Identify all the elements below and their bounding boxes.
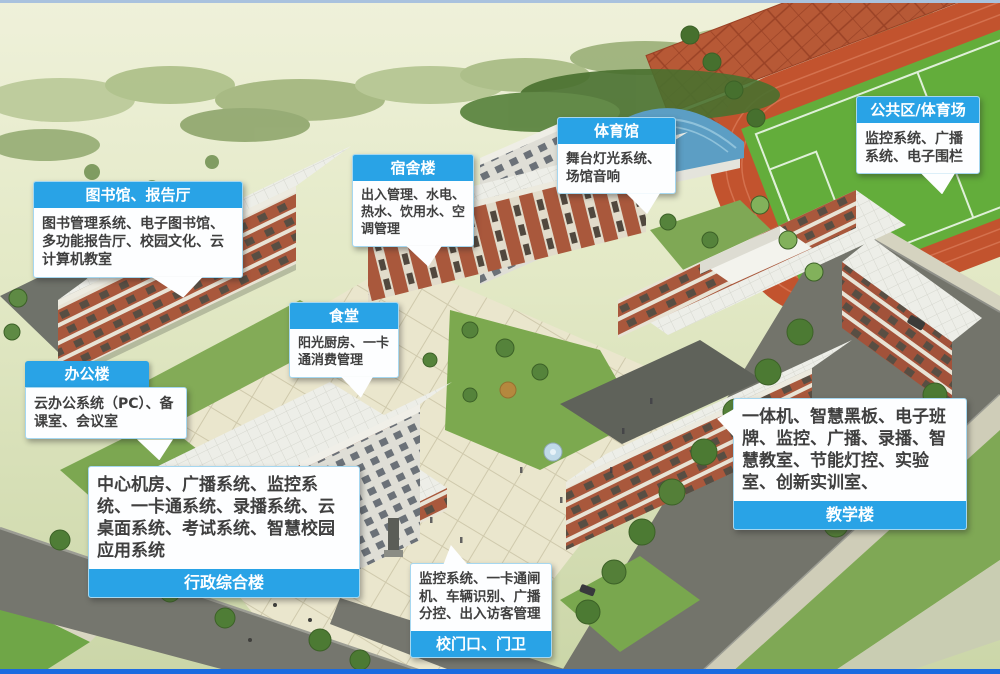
callout-library: 图书馆、报告厅 图书管理系统、电子图书馆、多功能报告厅、校园文化、云计算机教室 (33, 181, 243, 278)
callout-canteen-body: 阳光厨房、一卡通消费管理 (290, 329, 398, 377)
callout-teaching: 一体机、智慧黑板、电子班牌、监控、广播、录播、智慧教室、节能灯控、实验室、创新实… (733, 398, 967, 530)
callout-public-stadium-body: 监控系统、广播系统、电子围栏 (857, 123, 979, 173)
callout-canteen: 食堂 阳光厨房、一卡通消费管理 (289, 302, 399, 378)
callout-library-title: 图书馆、报告厅 (34, 182, 242, 208)
callout-dormitory-title: 宿舍楼 (353, 155, 473, 181)
callout-canteen-title: 食堂 (290, 303, 398, 329)
callout-dormitory-body: 出入管理、水电、热水、饮用水、空调管理 (353, 181, 473, 246)
bottom-border-line (0, 669, 1000, 674)
callout-teaching-title: 教学楼 (734, 501, 966, 528)
callout-public-stadium-title: 公共区/体育场 (857, 97, 979, 123)
gate-monument (388, 518, 399, 554)
callout-gymnasium-body: 舞台灯光系统、场馆音响 (558, 144, 675, 193)
callout-school-gate-body: 监控系统、一卡通闸机、车辆识别、广播分控、出入访客管理 (411, 564, 551, 631)
callout-office: 办公楼 云办公系统（PC）、备课室、会议室 (25, 361, 187, 439)
callout-school-gate: 监控系统、一卡通闸机、车辆识别、广播分控、出入访客管理 校门口、门卫 (410, 563, 552, 658)
callout-admin-complex-title: 行政综合楼 (89, 569, 359, 596)
callout-dormitory: 宿舍楼 出入管理、水电、热水、饮用水、空调管理 (352, 154, 474, 247)
callout-gymnasium-title: 体育馆 (558, 118, 675, 144)
callout-admin-complex-body: 中心机房、广播系统、监控系统、一卡通系统、录播系统、云桌面系统、考试系统、智慧校… (89, 467, 359, 569)
callout-office-title: 办公楼 (25, 361, 149, 387)
campus-aerial-view: 图书馆、报告厅 图书管理系统、电子图书馆、多功能报告厅、校园文化、云计算机教室 … (0, 0, 1000, 674)
callout-office-body: 云办公系统（PC）、备课室、会议室 (25, 387, 187, 439)
callout-gymnasium: 体育馆 舞台灯光系统、场馆音响 (557, 117, 676, 194)
callout-admin-complex: 中心机房、广播系统、监控系统、一卡通系统、录播系统、云桌面系统、考试系统、智慧校… (88, 466, 360, 598)
callout-teaching-body: 一体机、智慧黑板、电子班牌、监控、广播、录播、智慧教室、节能灯控、实验室、创新实… (734, 399, 966, 501)
fountain (544, 443, 562, 461)
callout-public-stadium: 公共区/体育场 监控系统、广播系统、电子围栏 (856, 96, 980, 174)
top-border-line (0, 0, 1000, 3)
callout-school-gate-title: 校门口、门卫 (411, 631, 551, 657)
callout-library-body: 图书管理系统、电子图书馆、多功能报告厅、校园文化、云计算机教室 (34, 208, 242, 277)
